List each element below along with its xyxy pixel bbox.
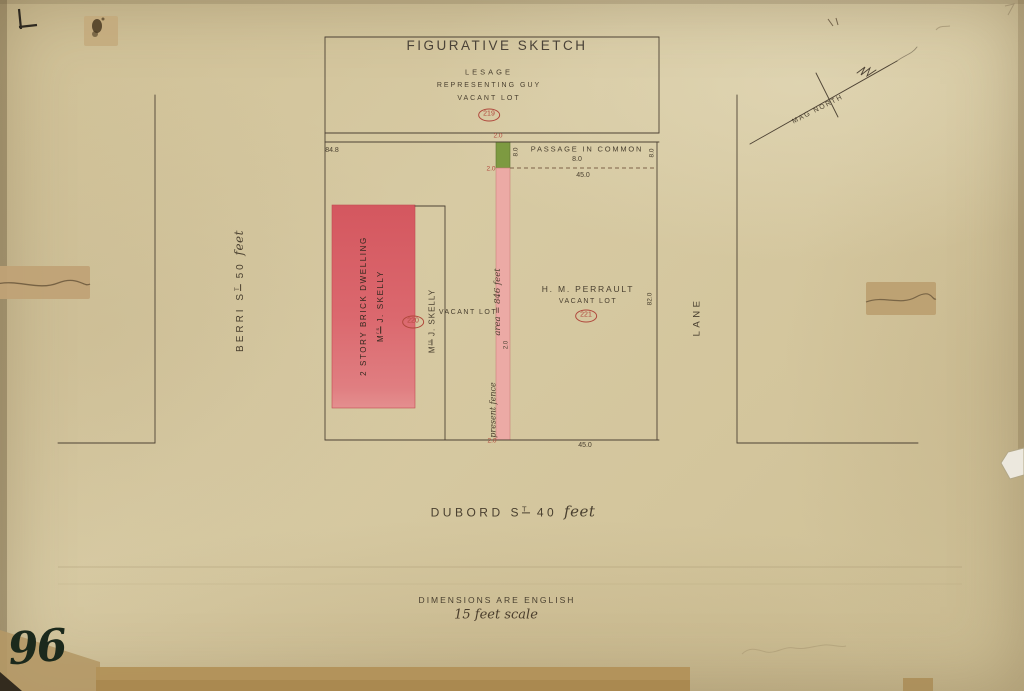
dwelling-owner-sup: rs: [376, 326, 381, 333]
lot-number-221: 221: [575, 309, 597, 322]
tape-patch-top-left: [84, 16, 118, 46]
page-number: 96: [6, 620, 67, 676]
passage-width: 8.0: [572, 156, 582, 164]
tape-strip-bottom: [0, 630, 933, 691]
dubord-street-label: DUBORD ST 40 feet: [431, 503, 596, 520]
tape-patch-left: [0, 266, 90, 299]
perrault-owner: H. M. PERRAULT: [542, 285, 635, 295]
lot-number-220: 220: [402, 315, 424, 328]
sketch-title: FIGURATIVE SKETCH: [406, 38, 587, 54]
brick-dwelling-label: 2 STORY BRICK DWELLING Mrs J. SKELLY: [356, 236, 388, 376]
dwelling-owner-rest: J. SKELLY: [376, 270, 385, 326]
perrault-lot-number-badge: 221: [575, 309, 597, 322]
skelly-vacant-lot-label: VACANT LOT: [439, 309, 497, 317]
paper-edges: [0, 0, 1024, 691]
lane-label: LANE: [693, 298, 704, 337]
dubord-width: 40: [530, 505, 564, 519]
dubord-name: DUBORD S: [431, 505, 522, 519]
lesage-lot-number-badge: 219: [478, 108, 500, 121]
perrault-vacant-lot-label: VACANT LOT: [559, 298, 617, 306]
torn-edge-notch: [1001, 448, 1024, 479]
passage-strip-green: [496, 142, 510, 168]
strip-fence-note: present fence: [488, 382, 497, 438]
strip-width-top: 2.0: [493, 132, 502, 139]
dimensions-note: DIMENSIONS ARE ENGLISH: [419, 596, 576, 606]
passage-east-width: 8.0: [648, 148, 655, 157]
dwelling-line1: 2 STORY BRICK DWELLING: [356, 236, 371, 376]
berri-width: 50: [235, 255, 246, 284]
survey-sketch-page: FIGURATIVE SKETCH LESAGE REPRESENTING GU…: [0, 0, 1024, 691]
berri-sup: T: [234, 284, 241, 291]
tape-patch-right: [866, 282, 936, 315]
dim-45-top: 45.0: [576, 172, 590, 180]
dubord-unit: feet: [564, 502, 595, 520]
strip-width-bottom: 2.0: [487, 437, 496, 444]
passage-west-width: 8.0: [512, 147, 519, 156]
dwelling-line2: Mrs J. SKELLY: [371, 236, 388, 376]
strip-area-note: area = 846 feet: [494, 268, 504, 335]
skelly-owner-rest: J. SKELLY: [427, 289, 436, 339]
skelly-owner-pre: M: [427, 345, 436, 353]
skelly-lot-number-badge: 220: [402, 315, 424, 328]
dim-45-bottom: 45.0: [578, 442, 592, 450]
passage-label: PASSAGE IN COMMON: [531, 146, 644, 155]
berri-name: BERRI S: [235, 291, 246, 352]
lesage-vacant-lot-label: VACANT LOT: [457, 95, 520, 103]
skelly-lot-owner: Mrs J. SKELLY: [427, 289, 436, 353]
dim-north-84-8: 84.8: [325, 147, 339, 155]
compass-needle: [750, 47, 917, 144]
lesage-owner: LESAGE: [465, 69, 513, 78]
skelly-owner-sup: rs: [428, 339, 433, 345]
lot-number-219: 219: [478, 108, 500, 121]
strip-width-mid: 2.0: [504, 341, 511, 349]
scale-note: 15 feet scale: [454, 609, 538, 624]
sketch-drawing-layer: [0, 0, 1024, 691]
dwelling-owner-pre: M: [376, 334, 385, 342]
lesage-representing: REPRESENTING GUY: [437, 82, 541, 90]
perrault-east-dim: 82.0: [646, 293, 653, 306]
berri-street-label: BERRI ST 50 feet: [233, 230, 247, 352]
strip-width-junction: 2.0: [486, 165, 495, 172]
berri-unit: feet: [232, 230, 246, 255]
